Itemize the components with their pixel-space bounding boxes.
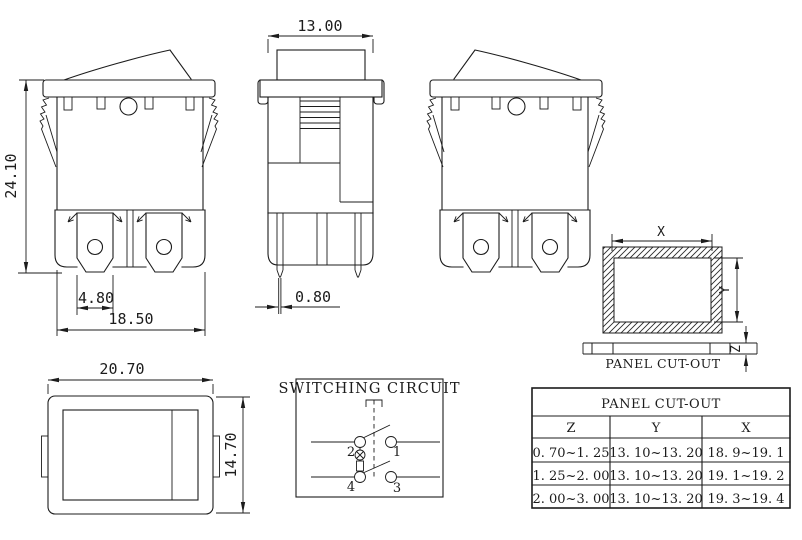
front-view: 24.10 4.80 18.50: [2, 50, 218, 336]
side-view: 13.00 0.80: [255, 17, 384, 314]
dim-terminal-width: 4.80: [78, 289, 114, 307]
terminal-3-label: 3: [393, 481, 401, 496]
table-title: PANEL CUT-OUT: [601, 397, 721, 412]
dim-top-height: 14.70: [222, 432, 240, 477]
drawing-svg: 24.10 4.80 18.50 13.00 0.80: [0, 0, 802, 540]
svg-text:19. 1~19. 2: 19. 1~19. 2: [707, 469, 784, 484]
panel-cutout-table: PANEL CUT-OUT Z Y X 0. 70~1. 25 13. 10~1…: [532, 388, 790, 508]
panel-cutout-diagram: X Y Z PANEL CUT-OUT: [583, 225, 757, 372]
dim-body-width: 18.50: [108, 310, 153, 328]
top-view: 20.70 14.70: [42, 360, 251, 514]
circuit-title: SWITCHING CIRCUIT: [278, 381, 460, 397]
cutout-z-label: Z: [729, 345, 744, 353]
table-row: 1. 25~2. 00 13. 10~13. 20 19. 1~19. 2: [532, 469, 784, 484]
terminal-1-label: 1: [393, 445, 401, 460]
terminal-2-node: [355, 437, 366, 448]
dim-rocker-width: 13.00: [297, 17, 342, 35]
svg-text:18. 9~19. 1: 18. 9~19. 1: [707, 446, 784, 461]
resistor-icon: [357, 461, 364, 471]
switching-circuit: SWITCHING CIRCUIT 2 1 4 3: [278, 379, 460, 497]
terminal-2-label: 2: [347, 445, 355, 460]
rocker-switch-technical-drawing: 24.10 4.80 18.50 13.00 0.80: [0, 0, 802, 540]
svg-text:13. 10~13. 20: 13. 10~13. 20: [609, 469, 703, 484]
table-col-y: Y: [651, 421, 661, 436]
dim-overall-height: 24.10: [2, 153, 20, 198]
panel-cutout-caption: PANEL CUT-OUT: [605, 356, 720, 371]
svg-text:2. 00~3. 00: 2. 00~3. 00: [532, 492, 609, 507]
front-view-mirrored: [427, 50, 605, 272]
terminal-4-label: 4: [347, 480, 355, 495]
cutout-x-label: X: [657, 225, 665, 240]
table-row: 0. 70~1. 25 13. 10~13. 20 18. 9~19. 1: [532, 446, 784, 461]
table-row: 2. 00~3. 00 13. 10~13. 20 19. 3~19. 4: [532, 492, 784, 507]
svg-text:0. 70~1. 25: 0. 70~1. 25: [532, 446, 609, 461]
svg-text:13. 10~13. 20: 13. 10~13. 20: [609, 492, 703, 507]
dim-top-width: 20.70: [99, 360, 144, 378]
svg-text:13. 10~13. 20: 13. 10~13. 20: [609, 446, 703, 461]
svg-text:1. 25~2. 00: 1. 25~2. 00: [532, 469, 609, 484]
svg-text:19. 3~19. 4: 19. 3~19. 4: [707, 492, 784, 507]
cutout-y-label: Y: [718, 286, 733, 294]
dim-terminal-thickness: 0.80: [295, 288, 331, 306]
table-col-x: X: [741, 421, 751, 436]
table-col-z: Z: [566, 421, 575, 436]
terminal-4-node: [355, 472, 366, 483]
